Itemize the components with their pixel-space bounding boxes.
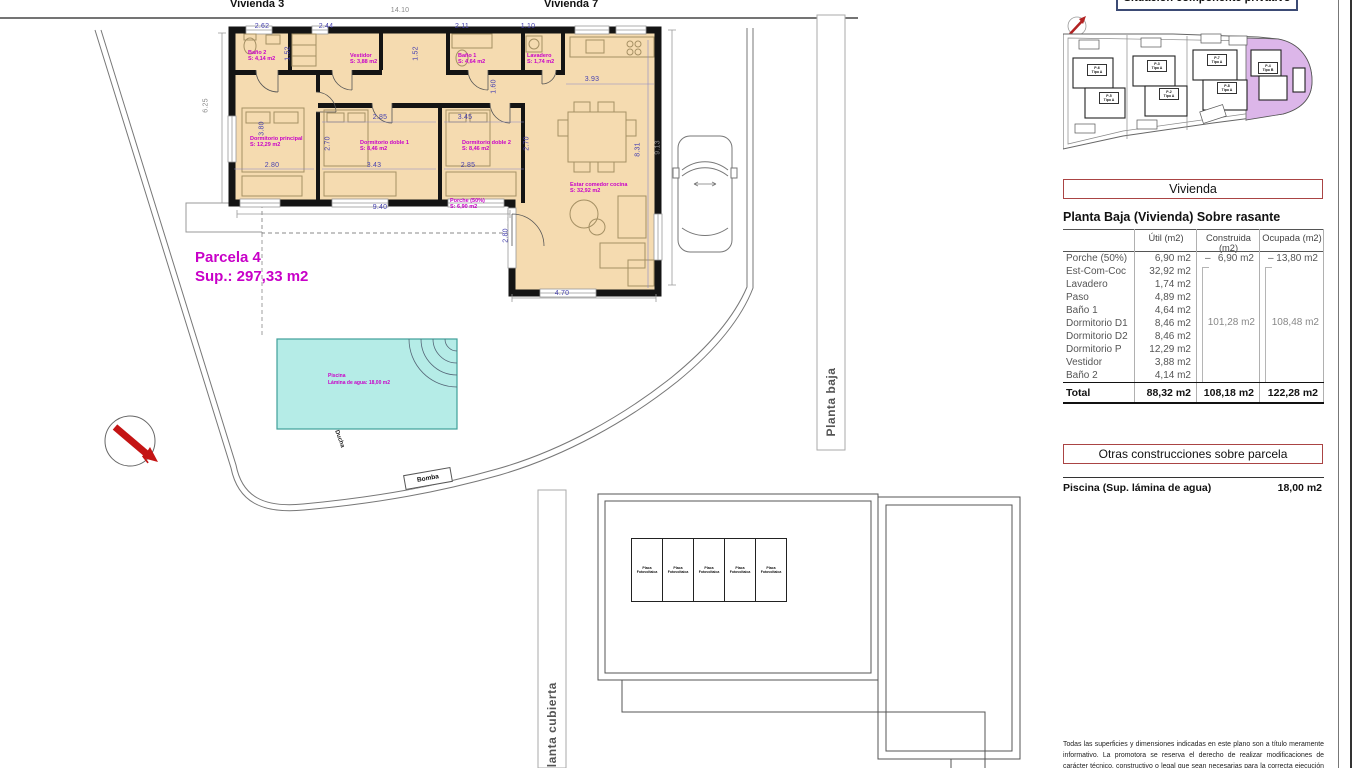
plot-label-p-4: P-4Tipo B <box>1258 62 1278 74</box>
vivienda-7-label: Vivienda 7 <box>544 0 598 10</box>
col-ocupada: Ocupada (m2) <box>1260 233 1324 243</box>
total-ocupada: 122,28 m2 <box>1260 387 1324 399</box>
dimension-label: 6.25 <box>203 94 210 118</box>
table-top-line <box>1063 229 1324 230</box>
row-label: Baño 1 <box>1063 305 1135 316</box>
dimension-label: 8.31 <box>635 138 642 162</box>
room-label: Porche (50%)S: 6,90 m2 <box>450 198 485 210</box>
room-area: S: 3,88 m2 <box>350 59 377 65</box>
table-row: Paso4,89 m2 <box>1063 291 1324 304</box>
panel-title: Situación componente privativo <box>1124 0 1291 4</box>
room-area: S: 8,46 m2 <box>360 146 409 152</box>
row-util: 6,90 m2 <box>1135 253 1197 264</box>
dimension-label: 1.52 <box>413 42 420 66</box>
piscina-value: 18,00 m2 <box>1278 482 1322 494</box>
row-util: 8,46 m2 <box>1135 331 1197 342</box>
row-label: Est-Com-Coc <box>1063 266 1135 277</box>
otras-header: Otras construcciones sobre parcela <box>1099 447 1288 461</box>
dimension-label: 1.10 <box>516 23 540 30</box>
row-util: 32,92 m2 <box>1135 266 1197 277</box>
row-util: 1,74 m2 <box>1135 279 1197 290</box>
room-label: Baño 1S: 4,64 m2 <box>458 53 485 65</box>
row-label: Dormitorio D1 <box>1063 318 1135 329</box>
table-row: Dormitorio D28,46 m2 <box>1063 330 1324 343</box>
total-label: Total <box>1063 387 1135 399</box>
dimension-label: 3.93 <box>580 76 604 83</box>
sheet-edge-line <box>1350 0 1352 768</box>
total-util: 88,32 m2 <box>1135 387 1197 399</box>
solar-panel-label: PlacaFotovoltaica <box>699 566 720 575</box>
total-construida: 108,18 m2 <box>1197 387 1260 399</box>
sheet-edge-line <box>1338 0 1339 768</box>
room-area: S: 1,74 m2 <box>527 59 554 65</box>
ocupada-group-value: 108,48 m2 <box>1263 317 1319 328</box>
solar-panel-label: PlacaFotovoltaica <box>668 566 689 575</box>
row-label: Dormitorio D2 <box>1063 331 1135 342</box>
dimension-label: 2.70 <box>524 132 531 156</box>
dimension-label: 4.70 <box>550 290 574 297</box>
row-label: Porche (50%) <box>1063 253 1135 264</box>
vivienda-3-label: Vivienda 3 <box>230 0 284 10</box>
plot-label-p-5: P-5Tipo A <box>1099 92 1119 104</box>
room-label: VestidorS: 3,88 m2 <box>350 53 377 65</box>
row-label: Vestidor <box>1063 357 1135 368</box>
dimension-label: 2.11 <box>450 23 474 30</box>
dimension-label: 3.43 <box>362 162 386 169</box>
room-area: S: 12,29 m2 <box>250 142 303 148</box>
table-row: Dormitorio P12,29 m2 <box>1063 343 1324 356</box>
solar-panel-array: PlacaFotovoltaicaPlacaFotovoltaicaPlacaF… <box>632 538 787 602</box>
room-area: S: 8,46 m2 <box>462 146 511 152</box>
otras-header-box: Otras construcciones sobre parcela <box>1063 444 1323 464</box>
table-row: Baño 24,14 m2 <box>1063 369 1324 382</box>
solar-panel-label: PlacaFotovoltaica <box>637 566 658 575</box>
table-total-row: Total 88,32 m2 108,18 m2 122,28 m2 <box>1063 382 1324 404</box>
planta-cubierta-label: Planta cubierta <box>545 669 559 768</box>
room-label: Baño 2S: 4,14 m2 <box>248 50 275 62</box>
solar-panel-label: PlacaFotovoltaica <box>730 566 751 575</box>
solar-panel: PlacaFotovoltaica <box>631 538 663 602</box>
room-label: Dormitorio doble 1S: 8,46 m2 <box>360 140 409 152</box>
table-title: Planta Baja (Vivienda) Sobre rasante <box>1063 210 1280 224</box>
room-area: S: 4,14 m2 <box>248 56 275 62</box>
planta-baja-label: Planta baja <box>824 352 838 452</box>
solar-panel: PlacaFotovoltaica <box>693 538 725 602</box>
dimension-label: 1.60 <box>491 75 498 99</box>
dimension-label: 14.10 <box>388 7 412 14</box>
vivienda-header: Vivienda <box>1169 182 1217 196</box>
plot-label-p-7: P-7Tipo A <box>1207 54 1227 66</box>
plot-label-p-3: P-3Tipo A <box>1147 60 1167 72</box>
room-area: S: 4,64 m2 <box>458 59 485 65</box>
row-util: 12,29 m2 <box>1135 344 1197 355</box>
room-label: Dormitorio principalS: 12,29 m2 <box>250 136 303 148</box>
row-util: 3,88 m2 <box>1135 357 1197 368</box>
dimension-label: 2.44 <box>314 23 338 30</box>
col-util: Útil (m2) <box>1135 233 1197 243</box>
room-area: S: 6,90 m2 <box>450 204 485 210</box>
dimension-label: 2.62 <box>250 23 274 30</box>
row-label: Paso <box>1063 292 1135 303</box>
sitemap-drawing <box>1063 28 1325 152</box>
dimension-label: 1.52 <box>285 42 292 66</box>
parcela-title: Parcela 4 Sup.: 297,33 m2 <box>195 248 308 286</box>
table-row: Est-Com-Coc32,92 m2 <box>1063 265 1324 278</box>
solar-panel: PlacaFotovoltaica <box>755 538 787 602</box>
dimension-label: 2.70 <box>325 132 332 156</box>
dimension-label: 2.80 <box>503 224 510 248</box>
dimension-label: 9.13 <box>655 136 662 160</box>
row-construida: –6,90 m2 <box>1197 253 1260 264</box>
pool-area: Lámina de agua: 18,00 m2 <box>328 380 390 387</box>
disclaimer-text: Todas las superficies y dimensiones indi… <box>1063 739 1324 768</box>
pool-label: Piscina Lámina de agua: 18,00 m2 <box>328 373 390 386</box>
parcela-name: Parcela 4 <box>195 248 308 267</box>
plot-label-p-8: P-8Tipo A <box>1217 82 1237 94</box>
row-util: 4,89 m2 <box>1135 292 1197 303</box>
row-label: Baño 2 <box>1063 370 1135 381</box>
solar-panel-label: PlacaFotovoltaica <box>761 566 782 575</box>
room-label: Dormitorio doble 2S: 8,46 m2 <box>462 140 511 152</box>
col-construida: Construida (m2) <box>1197 233 1260 253</box>
row-util: 8,46 m2 <box>1135 318 1197 329</box>
room-area: S: 32,92 m2 <box>570 188 627 194</box>
construida-group-value: 101,28 m2 <box>1199 317 1255 328</box>
row-util: 4,64 m2 <box>1135 305 1197 316</box>
dimension-label: 2.85 <box>368 114 392 121</box>
row-label: Dormitorio P <box>1063 344 1135 355</box>
otras-divider <box>1063 477 1324 478</box>
solar-panel: PlacaFotovoltaica <box>724 538 756 602</box>
table-row: Vestidor3,88 m2 <box>1063 356 1324 369</box>
plot-label-p-2: P-2Tipo A <box>1159 88 1179 100</box>
dimension-label: 9.40 <box>368 204 392 211</box>
row-util: 4,14 m2 <box>1135 370 1197 381</box>
table-row: Lavadero1,74 m2 <box>1063 278 1324 291</box>
solar-panel: PlacaFotovoltaica <box>662 538 694 602</box>
vivienda-header-box: Vivienda <box>1063 179 1323 199</box>
room-label: Estar comedor cocinaS: 32,92 m2 <box>570 182 627 194</box>
dimension-label: 2.85 <box>456 162 480 169</box>
panel-title-box: Situación componente privativo <box>1116 0 1298 11</box>
table-row: Baño 14,64 m2 <box>1063 304 1324 317</box>
row-label: Lavadero <box>1063 279 1135 290</box>
dimension-label: 2.80 <box>260 162 284 169</box>
row-ocupada: –13,80 m2 <box>1260 253 1324 264</box>
areas-table: Útil (m2) Construida (m2) Ocupada (m2) P… <box>1063 229 1324 403</box>
room-label: LavaderoS: 1,74 m2 <box>527 53 554 65</box>
piscina-row: Piscina (Sup. lámina de agua) 18,00 m2 <box>1063 482 1322 494</box>
parcela-area: Sup.: 297,33 m2 <box>195 267 308 286</box>
plot-label-p-6: P-6Tipo A <box>1087 64 1107 76</box>
piscina-label: Piscina (Sup. lámina de agua) <box>1063 482 1211 494</box>
table-row: Porche (50%)6,90 m2–6,90 m2–13,80 m2 <box>1063 252 1324 265</box>
plan-sheet: Vivienda 3 Vivienda 7 14.102.622.442.111… <box>0 0 1366 768</box>
dimension-label: 3.45 <box>453 114 477 121</box>
